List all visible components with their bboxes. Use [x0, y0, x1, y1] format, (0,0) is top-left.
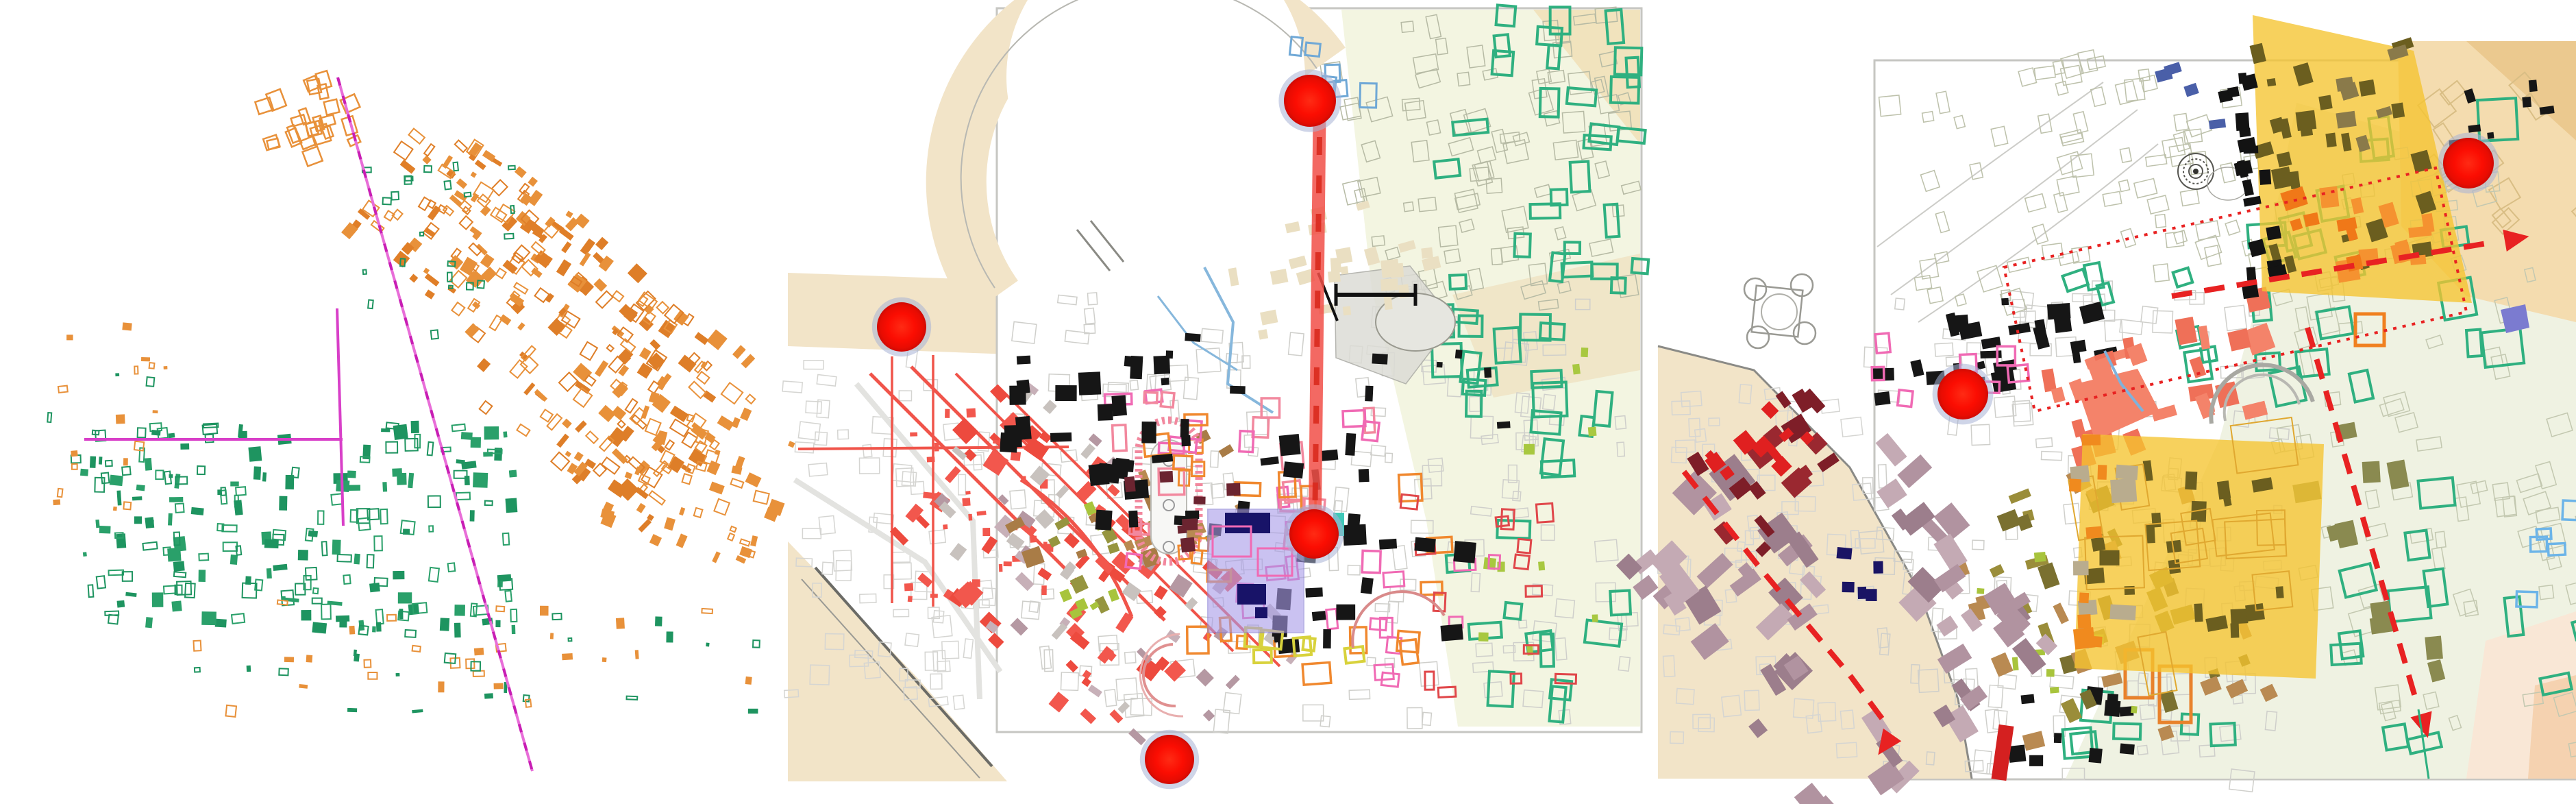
building — [532, 242, 545, 255]
building — [2054, 315, 2072, 333]
building — [71, 450, 77, 456]
building — [1365, 386, 1373, 402]
building — [2336, 111, 2356, 129]
building — [243, 583, 257, 598]
building — [595, 361, 608, 377]
building — [392, 468, 402, 477]
building — [465, 476, 470, 485]
building — [2125, 586, 2135, 595]
building — [899, 391, 911, 401]
building — [1230, 386, 1246, 394]
building — [1361, 577, 1374, 594]
building — [99, 526, 111, 533]
building — [730, 526, 736, 532]
building — [364, 660, 371, 668]
building — [838, 430, 849, 439]
building — [972, 579, 980, 587]
building — [709, 482, 725, 495]
building — [222, 525, 236, 532]
building — [556, 434, 569, 448]
building — [88, 585, 94, 597]
building — [264, 539, 279, 548]
building — [387, 615, 396, 621]
building — [559, 372, 578, 391]
building — [1538, 561, 1545, 570]
building — [556, 259, 571, 276]
building — [802, 528, 821, 539]
building — [1359, 469, 1370, 483]
building — [1336, 605, 1355, 620]
building — [1193, 496, 1205, 504]
building — [456, 493, 470, 500]
building — [602, 657, 607, 662]
building — [164, 366, 168, 369]
building — [156, 470, 163, 479]
building — [963, 639, 973, 658]
building — [1180, 537, 1196, 552]
marker-core — [1937, 369, 1988, 419]
building — [2109, 605, 2136, 620]
building — [753, 640, 760, 648]
building — [429, 568, 439, 582]
building — [391, 192, 399, 200]
building — [977, 511, 987, 515]
building — [475, 160, 486, 170]
building — [1312, 611, 1326, 621]
building — [2194, 603, 2203, 622]
building — [473, 472, 488, 488]
green-cluster-central — [80, 421, 517, 637]
building — [460, 216, 473, 229]
building — [134, 366, 138, 374]
building — [682, 474, 692, 484]
urban-map-collage — [0, 0, 2576, 804]
building — [706, 329, 727, 350]
building — [151, 430, 161, 436]
building — [874, 513, 893, 524]
building — [2236, 112, 2250, 131]
building — [1111, 395, 1127, 416]
building — [273, 564, 287, 571]
building — [503, 533, 509, 545]
building — [169, 433, 175, 439]
building — [993, 440, 1001, 445]
building — [471, 171, 477, 178]
building — [1390, 263, 1404, 278]
building — [496, 606, 504, 611]
building — [201, 611, 216, 625]
building — [318, 511, 323, 524]
building — [393, 571, 404, 580]
building — [143, 542, 157, 550]
building — [999, 564, 1003, 572]
building — [367, 555, 374, 568]
building — [285, 475, 294, 489]
building — [540, 606, 549, 616]
building — [312, 598, 322, 604]
building — [376, 622, 382, 632]
building — [612, 448, 628, 464]
building — [1161, 378, 1169, 385]
building — [523, 695, 530, 702]
building — [485, 501, 493, 506]
building — [694, 508, 703, 517]
building — [1341, 266, 1349, 274]
building — [1380, 278, 1398, 291]
building — [425, 289, 435, 299]
building — [509, 470, 517, 477]
building — [1078, 371, 1102, 395]
building — [1866, 589, 1877, 601]
building — [2083, 635, 2103, 648]
orange-cluster-east — [600, 391, 795, 563]
building — [2425, 636, 2443, 660]
building — [617, 348, 633, 363]
building — [1379, 539, 1397, 550]
building — [1497, 422, 1511, 429]
building — [580, 342, 597, 360]
building — [510, 360, 527, 378]
building — [689, 382, 706, 398]
building — [893, 563, 911, 579]
building — [736, 555, 747, 564]
figure-ground-growth-map — [47, 71, 795, 771]
building — [199, 554, 208, 561]
building — [403, 529, 410, 535]
building — [626, 399, 638, 413]
building — [1328, 271, 1341, 283]
building — [943, 524, 948, 529]
building — [782, 381, 802, 393]
building — [645, 305, 654, 315]
building — [405, 439, 418, 451]
building — [2070, 340, 2087, 354]
fort-tower-3 — [1747, 326, 1769, 348]
building — [798, 422, 820, 440]
building — [248, 446, 262, 462]
building — [686, 464, 695, 473]
building — [412, 646, 421, 652]
building — [337, 555, 351, 562]
urban-analysis-map-secondary — [1616, 15, 2576, 804]
building — [267, 138, 280, 149]
building — [625, 472, 633, 479]
building — [732, 345, 746, 358]
building — [284, 657, 294, 662]
building — [466, 659, 474, 668]
building — [191, 507, 204, 515]
building — [649, 339, 660, 350]
building — [420, 232, 423, 236]
building — [106, 461, 112, 466]
building — [1305, 587, 1323, 598]
building — [506, 498, 518, 513]
building — [641, 405, 649, 419]
building — [617, 478, 639, 501]
building — [754, 491, 769, 504]
building — [979, 600, 989, 607]
building — [804, 361, 823, 369]
building — [1041, 585, 1047, 595]
building — [217, 489, 221, 495]
building — [400, 160, 416, 174]
building — [547, 414, 562, 430]
maze-center — [2193, 169, 2199, 174]
marker-core — [1284, 75, 1336, 127]
axis-line-vertical — [337, 308, 343, 526]
building — [66, 334, 73, 340]
building — [636, 503, 646, 513]
building — [360, 456, 370, 463]
building — [1484, 367, 1491, 378]
building — [746, 395, 756, 404]
building — [569, 638, 572, 641]
building — [180, 443, 189, 450]
building — [657, 302, 669, 313]
building — [253, 466, 261, 480]
building — [1453, 541, 1476, 563]
building — [2217, 480, 2231, 500]
building — [2276, 586, 2284, 598]
building — [2318, 95, 2332, 110]
building — [1182, 518, 1198, 531]
building — [795, 442, 814, 453]
building — [2227, 86, 2240, 98]
building — [715, 450, 721, 455]
building — [1160, 471, 1174, 483]
building — [322, 541, 327, 555]
building — [230, 482, 238, 487]
site-marker-west — [872, 297, 931, 356]
building — [962, 498, 970, 506]
building — [232, 613, 245, 624]
building — [1098, 404, 1113, 421]
building — [145, 458, 152, 471]
building — [930, 674, 942, 689]
building — [2085, 526, 2102, 539]
building — [1343, 306, 1351, 316]
building — [788, 441, 795, 448]
building — [169, 474, 173, 478]
building — [860, 594, 876, 603]
building — [132, 496, 143, 500]
building — [197, 466, 205, 474]
building — [638, 519, 652, 533]
building — [234, 500, 243, 515]
building — [409, 273, 418, 282]
building — [83, 552, 87, 557]
building — [706, 461, 720, 476]
building — [2077, 614, 2091, 629]
building — [1478, 633, 1489, 642]
building — [116, 600, 125, 608]
building — [313, 588, 318, 594]
building — [1345, 433, 1356, 456]
building — [448, 563, 456, 572]
building — [411, 421, 419, 433]
building — [490, 315, 502, 330]
building — [645, 419, 661, 435]
building — [471, 437, 481, 448]
building — [904, 583, 913, 592]
building — [745, 472, 762, 487]
building — [586, 431, 598, 443]
building — [321, 605, 331, 620]
building — [393, 424, 408, 440]
building — [607, 345, 614, 352]
building — [817, 400, 830, 417]
building — [1421, 247, 1433, 259]
building — [2116, 465, 2138, 480]
building — [440, 618, 449, 631]
building — [199, 570, 206, 582]
building — [247, 666, 251, 672]
building — [1524, 444, 1535, 454]
building — [454, 162, 458, 171]
building — [2089, 748, 2103, 764]
building — [596, 291, 613, 308]
building — [575, 420, 587, 433]
building — [1180, 419, 1189, 437]
building — [730, 478, 743, 488]
building — [115, 373, 119, 376]
building — [863, 444, 871, 457]
building — [1022, 476, 1026, 483]
building — [639, 474, 650, 485]
building — [930, 594, 938, 598]
building — [349, 626, 355, 635]
building — [1323, 629, 1331, 648]
building — [1124, 476, 1136, 492]
building — [267, 568, 272, 578]
building — [1004, 561, 1012, 566]
building — [152, 592, 164, 607]
building — [953, 695, 964, 709]
building — [2110, 478, 2137, 503]
building — [1581, 348, 1588, 357]
building — [1588, 426, 1597, 436]
building — [455, 141, 467, 152]
building — [822, 562, 833, 574]
building — [665, 440, 674, 450]
building — [721, 382, 743, 404]
building — [394, 141, 412, 160]
building — [2079, 592, 2090, 603]
building — [712, 551, 721, 563]
building — [150, 423, 162, 431]
building — [1414, 537, 1435, 552]
building — [1043, 541, 1048, 548]
building — [474, 648, 484, 656]
building — [425, 273, 440, 287]
building — [168, 513, 173, 526]
building — [2107, 694, 2118, 711]
building — [299, 684, 308, 689]
building — [732, 417, 741, 428]
building — [740, 539, 750, 546]
building — [687, 415, 695, 422]
marker-core — [1289, 509, 1339, 559]
building — [958, 474, 966, 495]
building — [473, 671, 484, 677]
building — [471, 661, 480, 670]
building — [1283, 461, 1304, 478]
building — [428, 442, 434, 456]
building — [735, 456, 745, 469]
building — [2050, 687, 2059, 694]
building — [2001, 298, 2009, 306]
building — [477, 358, 491, 372]
building — [116, 491, 121, 506]
building — [2097, 465, 2107, 480]
site-marker-north — [1278, 69, 1341, 132]
building — [484, 426, 499, 439]
building — [740, 408, 752, 422]
building — [225, 705, 236, 717]
building — [2029, 755, 2043, 766]
building — [279, 668, 288, 675]
building — [593, 463, 606, 476]
building — [1111, 459, 1134, 472]
building — [676, 533, 688, 548]
building — [2185, 472, 2197, 490]
building — [108, 615, 119, 624]
building — [138, 428, 146, 437]
building — [363, 269, 367, 274]
building — [116, 414, 125, 424]
building — [927, 456, 935, 462]
site-marker-west — [1933, 364, 1994, 425]
building — [1347, 513, 1361, 536]
building — [195, 668, 200, 672]
building — [72, 464, 77, 470]
building — [454, 623, 461, 638]
building — [495, 620, 500, 627]
building — [510, 609, 517, 622]
building — [929, 530, 945, 544]
building — [1372, 354, 1387, 365]
building — [408, 129, 424, 144]
building — [399, 609, 404, 619]
building — [2099, 550, 2119, 565]
building — [483, 452, 493, 456]
building — [90, 456, 96, 468]
building — [550, 633, 554, 639]
building — [492, 180, 508, 195]
building — [666, 631, 673, 642]
building — [1089, 463, 1110, 486]
building — [695, 332, 709, 345]
building — [1279, 434, 1301, 456]
building — [1455, 350, 1463, 359]
building — [741, 354, 756, 368]
building — [1050, 433, 1072, 442]
building — [750, 535, 758, 546]
building — [412, 709, 423, 714]
building — [595, 237, 608, 250]
orange-band-upper — [341, 129, 590, 343]
building — [145, 617, 153, 628]
building — [649, 491, 665, 504]
building — [380, 509, 387, 524]
site-marker-south — [1140, 730, 1199, 789]
building — [503, 431, 507, 437]
building — [2034, 552, 2046, 562]
building — [454, 605, 465, 616]
building — [423, 227, 436, 237]
building — [484, 693, 493, 698]
building — [422, 156, 431, 165]
